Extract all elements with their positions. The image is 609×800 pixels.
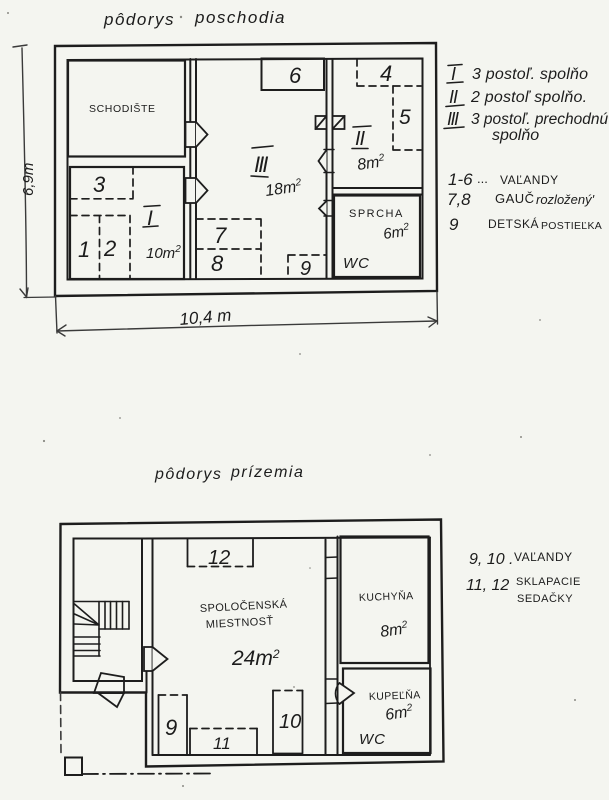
svg-text:GAUČ: GAUČ [495,191,535,206]
svg-text:VAĽANDY: VAĽANDY [500,173,559,187]
svg-text:pôdorys: pôdorys [154,466,222,483]
svg-text:poschodia: poschodia [194,8,286,27]
svg-text:18m2: 18m2 [264,177,303,200]
svg-text:8m2: 8m2 [356,152,386,174]
svg-text:7,8: 7,8 [447,190,471,209]
svg-text:10,4 m: 10,4 m [179,306,232,329]
svg-text:WC: WC [343,255,370,272]
svg-text:spolňo: spolňo [492,127,539,144]
svg-text:II: II [449,87,458,107]
svg-text:III: III [254,152,268,177]
svg-text:1: 1 [78,237,90,262]
svg-text:SKLAPACIE: SKLAPACIE [516,576,581,588]
svg-text:WC: WC [359,731,386,748]
svg-text:9: 9 [300,258,311,280]
svg-text:II: II [355,128,366,150]
svg-text:SPRCHA: SPRCHA [349,208,404,220]
svg-text:6,9m: 6,9m [20,163,37,196]
svg-text:POSTIEĽKA: POSTIEĽKA [541,220,602,232]
svg-text:...: ... [477,171,488,186]
svg-text:8m2: 8m2 [379,619,409,641]
svg-text:6m2: 6m2 [384,702,414,724]
svg-text:I: I [451,64,456,84]
svg-text:9: 9 [165,715,177,740]
svg-text:2: 2 [103,236,116,261]
svg-text:4: 4 [380,61,392,86]
svg-text:rozložený': rozložený' [536,192,595,207]
svg-text:6m2: 6m2 [382,221,411,243]
svg-text:KUPEĽŇA: KUPEĽŇA [369,688,421,703]
svg-text:9: 9 [449,215,459,234]
svg-text:11, 12: 11, 12 [466,577,509,594]
svg-text:prízemia: prízemia [230,464,304,481]
svg-text:2 postoľ spolňo.: 2 postoľ spolňo. [470,89,587,106]
svg-text:III: III [447,109,459,129]
svg-text:3: 3 [93,172,106,197]
svg-text:3 postoľ. spolňo: 3 postoľ. spolňo [472,66,588,83]
svg-text:5: 5 [399,106,411,129]
svg-text:10: 10 [279,711,301,733]
svg-text:8: 8 [211,251,224,276]
svg-text:12: 12 [208,547,230,569]
svg-text:6: 6 [289,63,302,88]
svg-text:SEDAČKY: SEDAČKY [517,592,573,605]
svg-text:7: 7 [214,223,227,248]
svg-text:10m2: 10m2 [146,244,181,262]
svg-text:11: 11 [213,734,231,753]
svg-text:SCHODIŠTE: SCHODIŠTE [89,102,156,115]
svg-text:9, 10 .: 9, 10 . [469,551,513,568]
svg-text:MIESTNOSŤ: MIESTNOSŤ [205,614,273,631]
svg-text:24m2: 24m2 [231,647,280,670]
svg-text:1-6: 1-6 [448,170,473,189]
svg-text:KUCHYŇA: KUCHYŇA [359,589,414,604]
svg-text:SPOLOČENSKÁ: SPOLOČENSKÁ [199,597,287,615]
svg-text:3 postoľ. prechodnú: 3 postoľ. prechodnú [471,111,608,128]
svg-text:DETSKÁ: DETSKÁ [488,216,539,231]
svg-text:pôdorys: pôdorys [103,10,175,29]
svg-text:VAĽANDY: VAĽANDY [514,550,573,564]
